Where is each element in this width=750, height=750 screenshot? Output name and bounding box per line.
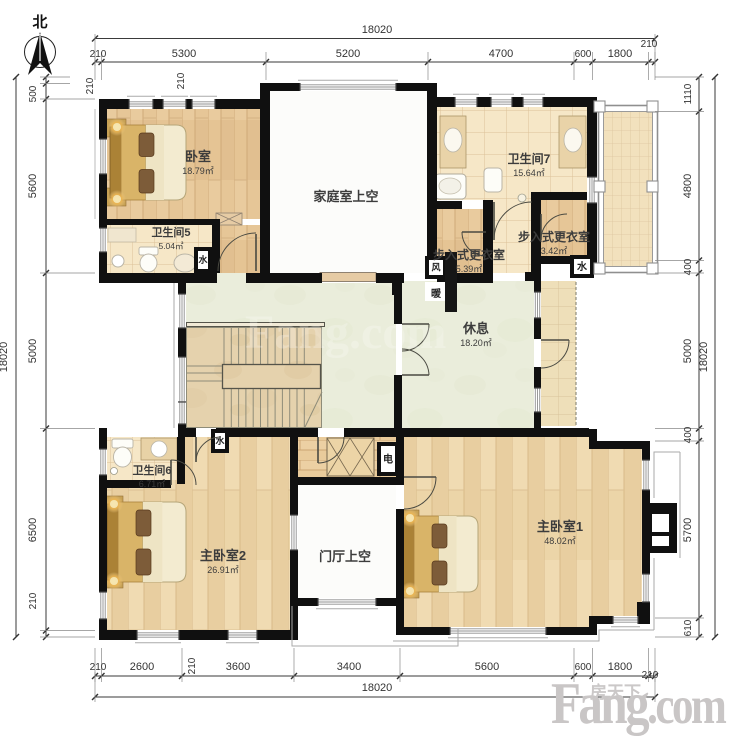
svg-text:门厅上空: 门厅上空 bbox=[319, 549, 371, 564]
svg-text:600: 600 bbox=[575, 49, 592, 60]
svg-text:暖: 暖 bbox=[431, 287, 442, 300]
svg-text:5600: 5600 bbox=[27, 174, 39, 198]
svg-text:主卧室2: 主卧室2 bbox=[200, 548, 246, 563]
svg-text:Fang.com: Fang.com bbox=[245, 306, 446, 359]
svg-text:500: 500 bbox=[28, 85, 39, 102]
svg-text:3.42㎡: 3.42㎡ bbox=[541, 246, 568, 256]
svg-text:210: 210 bbox=[641, 39, 658, 50]
svg-text:5000: 5000 bbox=[682, 339, 694, 363]
svg-text:水: 水 bbox=[198, 254, 208, 265]
svg-text:北: 北 bbox=[32, 14, 47, 31]
svg-text:5200: 5200 bbox=[336, 48, 360, 60]
svg-text:卫生间6: 卫生间6 bbox=[132, 463, 171, 477]
svg-text:210: 210 bbox=[176, 72, 187, 89]
svg-text:5.39㎡: 5.39㎡ bbox=[456, 264, 483, 274]
svg-text:18.20㎡: 18.20㎡ bbox=[460, 338, 492, 348]
svg-text:18020: 18020 bbox=[0, 342, 10, 373]
svg-text:3400: 3400 bbox=[337, 661, 361, 673]
svg-text:210: 210 bbox=[90, 49, 107, 60]
svg-text:5600: 5600 bbox=[475, 661, 499, 673]
svg-text:风: 风 bbox=[431, 263, 440, 273]
svg-text:400: 400 bbox=[683, 426, 694, 443]
svg-text:26.91㎡: 26.91㎡ bbox=[207, 565, 239, 575]
svg-text:210: 210 bbox=[90, 662, 107, 673]
svg-text:Fang.com: Fang.com bbox=[551, 669, 727, 736]
svg-text:210: 210 bbox=[187, 657, 198, 674]
svg-text:水: 水 bbox=[576, 260, 588, 273]
svg-text:15.64㎡: 15.64㎡ bbox=[513, 168, 545, 178]
svg-text:6500: 6500 bbox=[27, 518, 39, 542]
svg-text:主卧室1: 主卧室1 bbox=[537, 519, 583, 534]
svg-text:18.79㎡: 18.79㎡ bbox=[182, 166, 214, 176]
svg-text:电: 电 bbox=[383, 453, 393, 466]
svg-text:5000: 5000 bbox=[27, 339, 39, 363]
svg-text:6.71㎡: 6.71㎡ bbox=[139, 479, 166, 489]
svg-text:4700: 4700 bbox=[489, 48, 513, 60]
svg-text:18020: 18020 bbox=[362, 682, 393, 694]
svg-text:5.04㎡: 5.04㎡ bbox=[158, 241, 184, 251]
svg-text:卫生间5: 卫生间5 bbox=[151, 225, 190, 239]
svg-text:2600: 2600 bbox=[130, 661, 154, 673]
svg-text:步入式更衣室: 步入式更衣室 bbox=[518, 229, 590, 244]
svg-text:5700: 5700 bbox=[682, 518, 694, 542]
svg-text:48.02㎡: 48.02㎡ bbox=[544, 536, 576, 546]
svg-text:5300: 5300 bbox=[172, 48, 196, 60]
svg-text:610: 610 bbox=[683, 619, 694, 636]
svg-text:步入式更衣室: 步入式更衣室 bbox=[433, 247, 505, 262]
svg-text:卧室: 卧室 bbox=[185, 149, 211, 164]
svg-text:卫生间7: 卫生间7 bbox=[508, 151, 551, 166]
svg-text:18020: 18020 bbox=[698, 342, 710, 373]
svg-text:210: 210 bbox=[85, 77, 96, 94]
svg-text:家庭室上空: 家庭室上空 bbox=[313, 189, 378, 204]
svg-text:1800: 1800 bbox=[608, 48, 632, 60]
svg-text:房天下: 房天下 bbox=[590, 682, 641, 702]
svg-text:1110: 1110 bbox=[683, 83, 694, 104]
svg-text:休息: 休息 bbox=[462, 321, 489, 336]
svg-text:400: 400 bbox=[683, 258, 694, 275]
svg-text:210: 210 bbox=[28, 592, 39, 609]
svg-text:18020: 18020 bbox=[362, 24, 393, 36]
svg-text:4800: 4800 bbox=[682, 174, 694, 198]
svg-text:3600: 3600 bbox=[226, 661, 250, 673]
